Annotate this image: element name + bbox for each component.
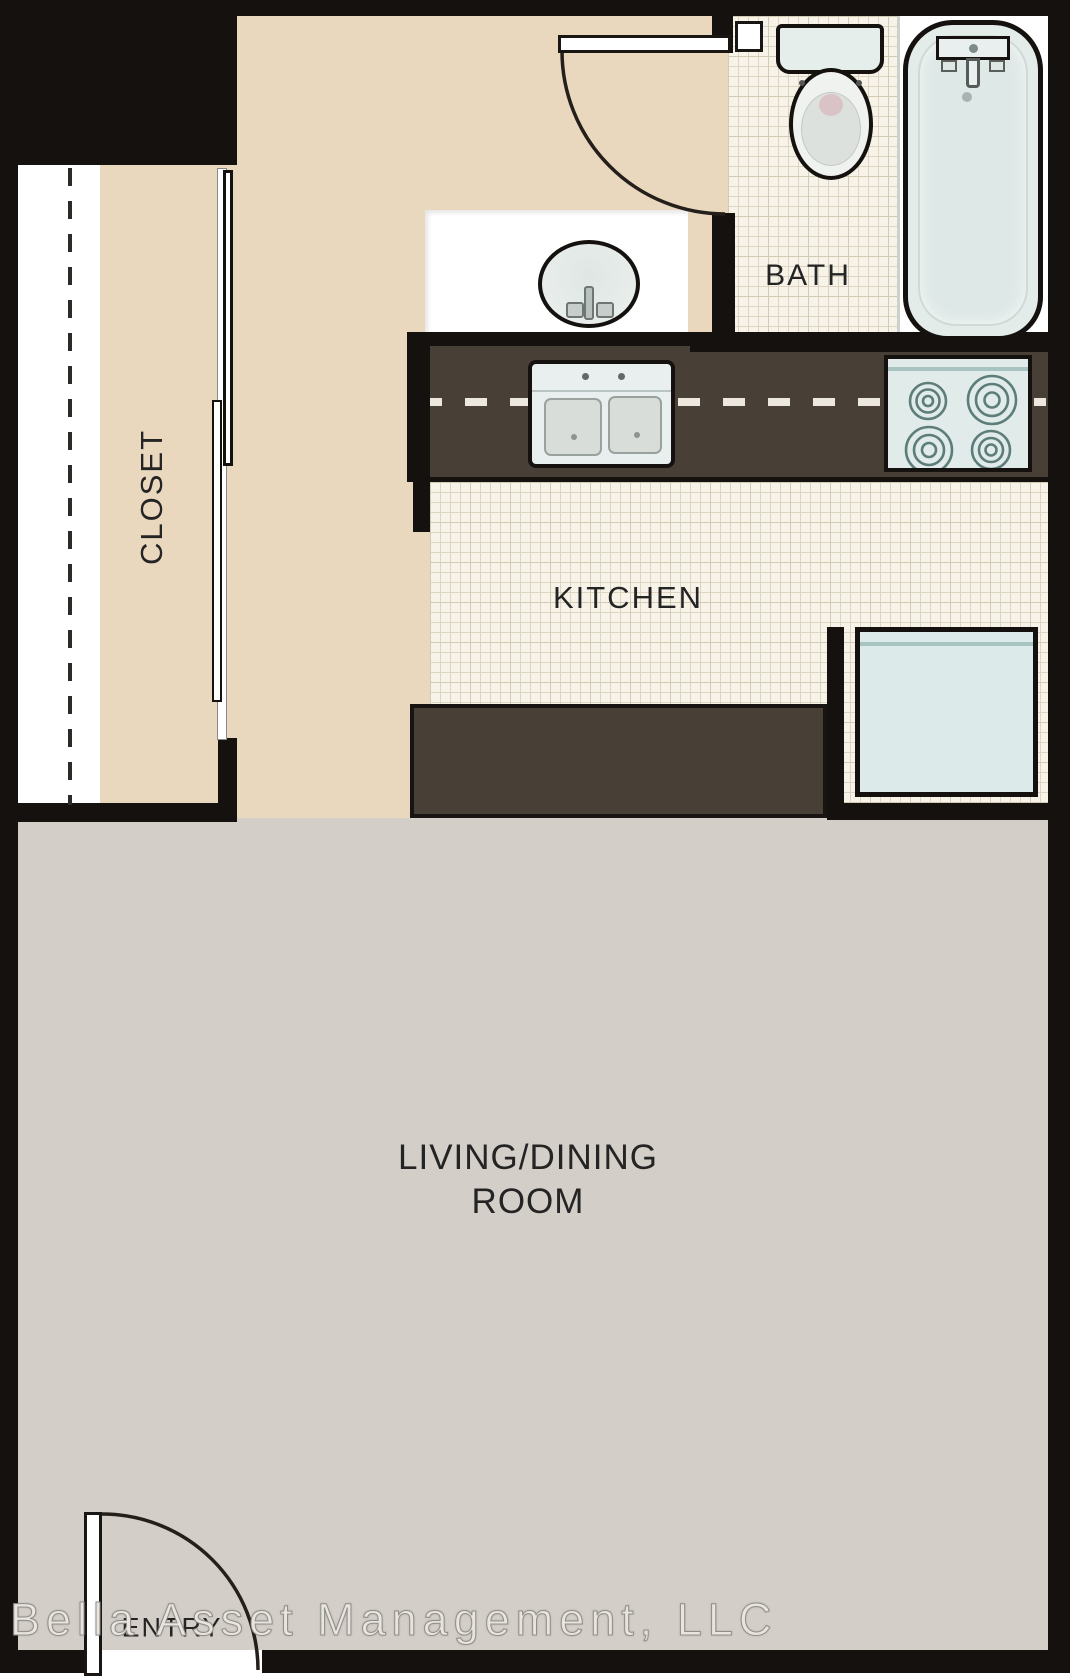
bath-door-jamb (735, 21, 763, 52)
closet-label: CLOSET (134, 429, 170, 565)
kitchen-label: KITCHEN (553, 580, 703, 616)
bath-label: BATH (765, 259, 851, 293)
bath-door-swing-arc (562, 51, 725, 214)
entry-door-swing-arc (102, 1514, 258, 1670)
watermark-text: Bella Asset Management, LLC (10, 1594, 777, 1646)
door-swing-arcs (0, 0, 1092, 1680)
floorplan: CLOSET BATH KITCHEN LIVING/DINING ROOM E… (0, 0, 1092, 1680)
bath-door-leaf (558, 35, 731, 53)
living-dining-label-line2: ROOM (398, 1180, 658, 1224)
living-dining-label-line1: LIVING/DINING (398, 1136, 658, 1180)
living-dining-label: LIVING/DINING ROOM (398, 1136, 658, 1224)
